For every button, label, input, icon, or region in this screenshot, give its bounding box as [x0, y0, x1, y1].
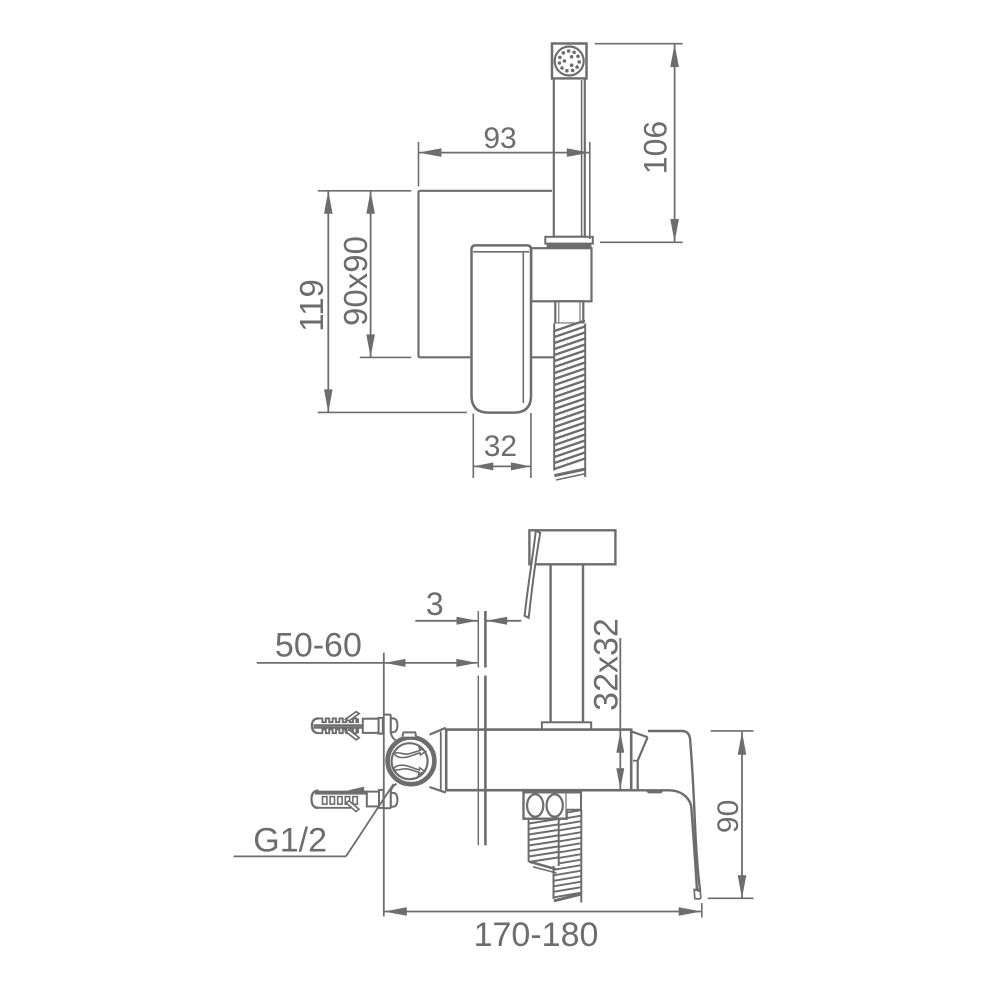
- svg-text:93: 93: [483, 122, 516, 155]
- svg-text:32: 32: [484, 430, 517, 463]
- svg-text:G1/2: G1/2: [253, 821, 327, 859]
- svg-text:119: 119: [293, 279, 330, 332]
- svg-text:50-60: 50-60: [275, 627, 362, 665]
- svg-text:106: 106: [638, 121, 674, 174]
- svg-text:32x32: 32x32: [588, 618, 626, 711]
- svg-text:170-180: 170-180: [474, 916, 599, 954]
- svg-text:90: 90: [712, 800, 745, 833]
- svg-text:3: 3: [426, 586, 444, 622]
- svg-text:90x90: 90x90: [337, 236, 374, 326]
